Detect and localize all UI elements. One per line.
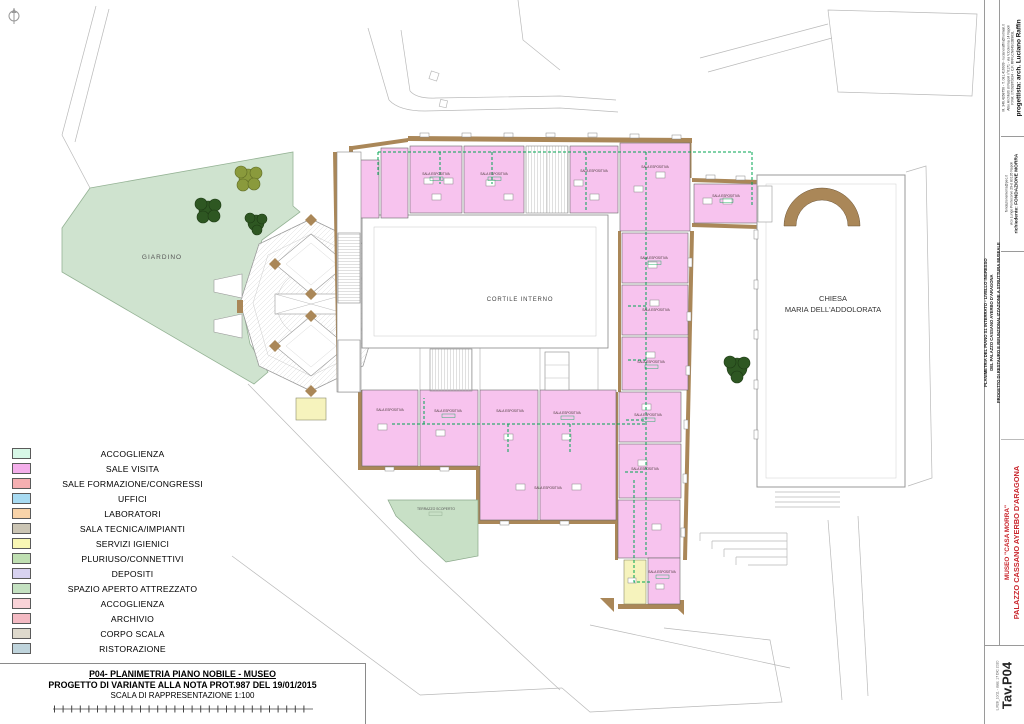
legend-swatch — [12, 583, 31, 594]
legend-label: CORPO SCALA — [31, 629, 234, 639]
room-label: SALA ESPOSITIVA — [434, 409, 462, 413]
church-label-line2: MARIA DELL'ADDOLORATA — [785, 305, 881, 314]
room-label: SALA ESPOSITIVA — [634, 413, 662, 417]
legend-swatch — [12, 598, 31, 609]
legend-label: SALE FORMAZIONE/CONGRESSI — [31, 479, 234, 489]
legend-item: SERVIZI IGIENICI — [8, 536, 234, 551]
legend-item: LABORATORI — [8, 506, 234, 521]
garden-label: GIARDINO — [142, 254, 182, 261]
room-label: SALA ESPOSITIVA — [712, 194, 740, 198]
scale-bar — [52, 703, 314, 715]
legend-swatch — [12, 643, 31, 654]
legend-label: SPAZIO APERTO ATTREZZATO — [31, 584, 234, 594]
room-label: SALA ESPOSITIVA — [631, 467, 659, 471]
legend-label: SERVIZI IGIENICI — [31, 539, 234, 549]
legend-label: ARCHIVIO — [31, 614, 234, 624]
legend-label: PLURIUSO/CONNETTIVI — [31, 554, 234, 564]
legend-label: ACCOGLIENZA — [31, 599, 234, 609]
legend-item: SALE VISITA — [8, 461, 234, 476]
legend-swatch — [12, 508, 31, 519]
courtyard: CORTILE INTERNO — [362, 215, 608, 348]
courtyard-label: CORTILE INTERNO — [487, 297, 554, 303]
room-label: SALA ESPOSITIVA — [640, 256, 668, 260]
sidebar: PLANIMETRIA DEL PIANO S1 INTERRATO - LIV… — [984, 0, 1024, 724]
legend-item: UFFICI — [8, 491, 234, 506]
scale-note: SCALA DI RAPPRESENTAZIONE 1:100 — [0, 691, 365, 700]
room-label: SALA ESPOSITIVA — [642, 308, 670, 312]
legend-label: LABORATORI — [31, 509, 234, 519]
variant-note: PROGETTO DI VARIANTE ALLA NOTA PROT.987 … — [0, 680, 365, 690]
building-title-cell: MUSEO "CASA MORRA" PALAZZO CASSANO AYERB… — [1001, 440, 1024, 645]
sheet-number: Tav.P04 — [1000, 660, 1014, 710]
legend-item: SALE FORMAZIONE/CONGRESSI — [8, 476, 234, 491]
project-line2: DEL PALAZZO CASSANO AYERBO D'ARAGONA — [989, 242, 995, 403]
church-label-line1: CHIESA — [819, 294, 847, 303]
legend-label: UFFICI — [31, 494, 234, 504]
legend-swatch — [12, 568, 31, 579]
room-label: SALA ESPOSITIVA — [641, 165, 669, 169]
designer-title: progettista: arch. Luciano Raffin — [1015, 20, 1023, 117]
room-label: SALA ESPOSITIVA — [637, 360, 665, 364]
designer-cell: M. 346.4268756 - T. 081.416939 - luciano… — [1001, 0, 1024, 137]
designer-contact: M. 346.4268756 - T. 081.416939 - luciano… — [1002, 20, 1007, 117]
room-label: SALA ESPOSITIVA — [422, 172, 450, 176]
room-label: SALA ESPOSITIVA — [580, 169, 608, 173]
legend-swatch — [12, 463, 31, 474]
legend-swatch — [12, 613, 31, 624]
client-address: vico Lungo Pontecorvo 29-d 80135 Napoli — [1009, 154, 1014, 234]
room-label: SALA ESPOSITIVA — [648, 570, 676, 574]
legend-item: RISTORAZIONE — [8, 641, 234, 656]
legend-item: SPAZIO APERTO ATTREZZATO — [8, 581, 234, 596]
building-title: PALAZZO CASSANO AYERBO D'ARAGONA — [1012, 466, 1022, 619]
drawing-sheet: { "page": { "background": "#ffffff" }, "… — [0, 0, 1024, 724]
church: CHIESA MARIA DELL'ADDOLORATA — [757, 175, 905, 487]
tree-near-church — [724, 356, 750, 383]
room-label: SALA ESPOSITIVA — [376, 408, 404, 412]
legend-swatch — [12, 493, 31, 504]
legend-item: SALA TECNICA/IMPIANTI — [8, 521, 234, 536]
project-description-cell: PLANIMETRIA DEL PIANO S1 INTERRATO - LIV… — [985, 0, 1000, 645]
legend-swatch — [12, 628, 31, 639]
title-block: P04- PLANIMETRIA PIANO NOBILE - MUSEO PR… — [0, 663, 366, 724]
legend-label: ACCOGLIENZA — [31, 449, 234, 459]
museum-subtitle: MUSEO "CASA MORRA" — [1003, 466, 1012, 619]
legend-label: SALA TECNICA/IMPIANTI — [31, 524, 234, 534]
legend-item: CORPO SCALA — [8, 626, 234, 641]
client-cell: fondazionemorra@pec.it vico Lungo Pontec… — [1001, 137, 1024, 252]
room-label: SALA ESPOSITIVA — [480, 172, 508, 176]
legend-swatch — [12, 478, 31, 489]
legend: ACCOGLIENZA SALE VISITA SALE FORMAZIONE/… — [8, 446, 234, 656]
legend-label: SALE VISITA — [31, 464, 234, 474]
room-label: SALA ESPOSITIVA — [534, 486, 562, 490]
legend-item: ACCOGLIENZA — [8, 596, 234, 611]
room-label: SALA ESPOSITIVA — [496, 409, 524, 413]
legend-swatch — [12, 538, 31, 549]
client-pec: fondazionemorra@pec.it — [1004, 154, 1009, 234]
open-terrace: TERRAZZO SCOPERTO — [388, 500, 478, 562]
legend-item: DEPOSITI — [8, 566, 234, 581]
stamp-area — [1001, 252, 1024, 440]
legend-swatch — [12, 523, 31, 534]
legend-item: PLURIUSO/CONNETTIVI — [8, 551, 234, 566]
project-line3: PLANIMETRIA DEL PIANO S1 INTERRATO - LIV… — [982, 242, 988, 403]
terrace-label: TERRAZZO SCOPERTO — [417, 507, 455, 511]
room-label: SALA ESPOSITIVA — [553, 411, 581, 415]
north-arrow-icon — [9, 8, 19, 24]
legend-label: DEPOSITI — [31, 569, 234, 579]
client-title: richiedente: FONDAZIONE MORRA — [1013, 154, 1021, 234]
legend-swatch — [12, 553, 31, 564]
legend-item: ACCOGLIENZA — [8, 446, 234, 461]
sheet-number-cell: L.R28_10/11 - data: 17 DIC 2020 Tav.P04 — [985, 645, 1024, 724]
legend-label: RISTORAZIONE — [31, 644, 234, 654]
legend-item: ARCHIVIO — [8, 611, 234, 626]
sheet-title: P04- PLANIMETRIA PIANO NOBILE - MUSEO — [0, 669, 365, 679]
legend-swatch — [12, 448, 31, 459]
